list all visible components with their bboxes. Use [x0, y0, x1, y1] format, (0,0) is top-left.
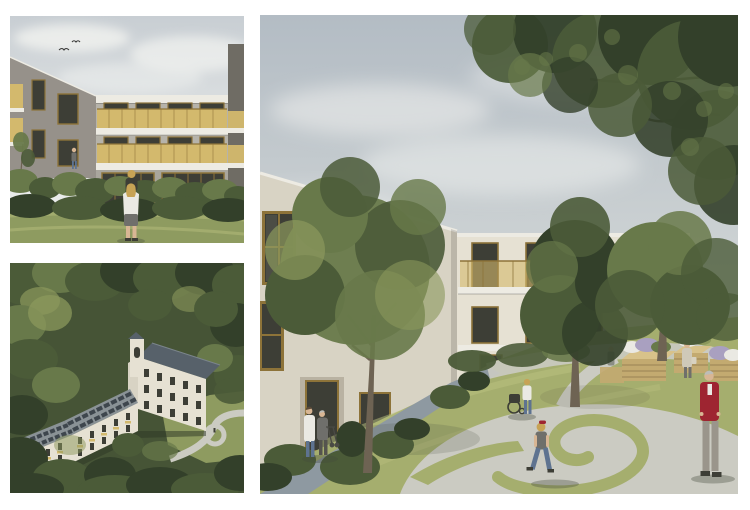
rendering-collage: [0, 0, 750, 510]
visitor-figure: [214, 428, 216, 433]
courtyard-image: [260, 15, 738, 494]
right-wing-facade: [228, 44, 244, 194]
balcony-row-lower: [96, 144, 228, 170]
tower: [128, 332, 144, 377]
aerial-forest-image: [10, 263, 244, 493]
garden-facade-image: [10, 16, 244, 243]
balcony-row-upper: [96, 109, 228, 135]
